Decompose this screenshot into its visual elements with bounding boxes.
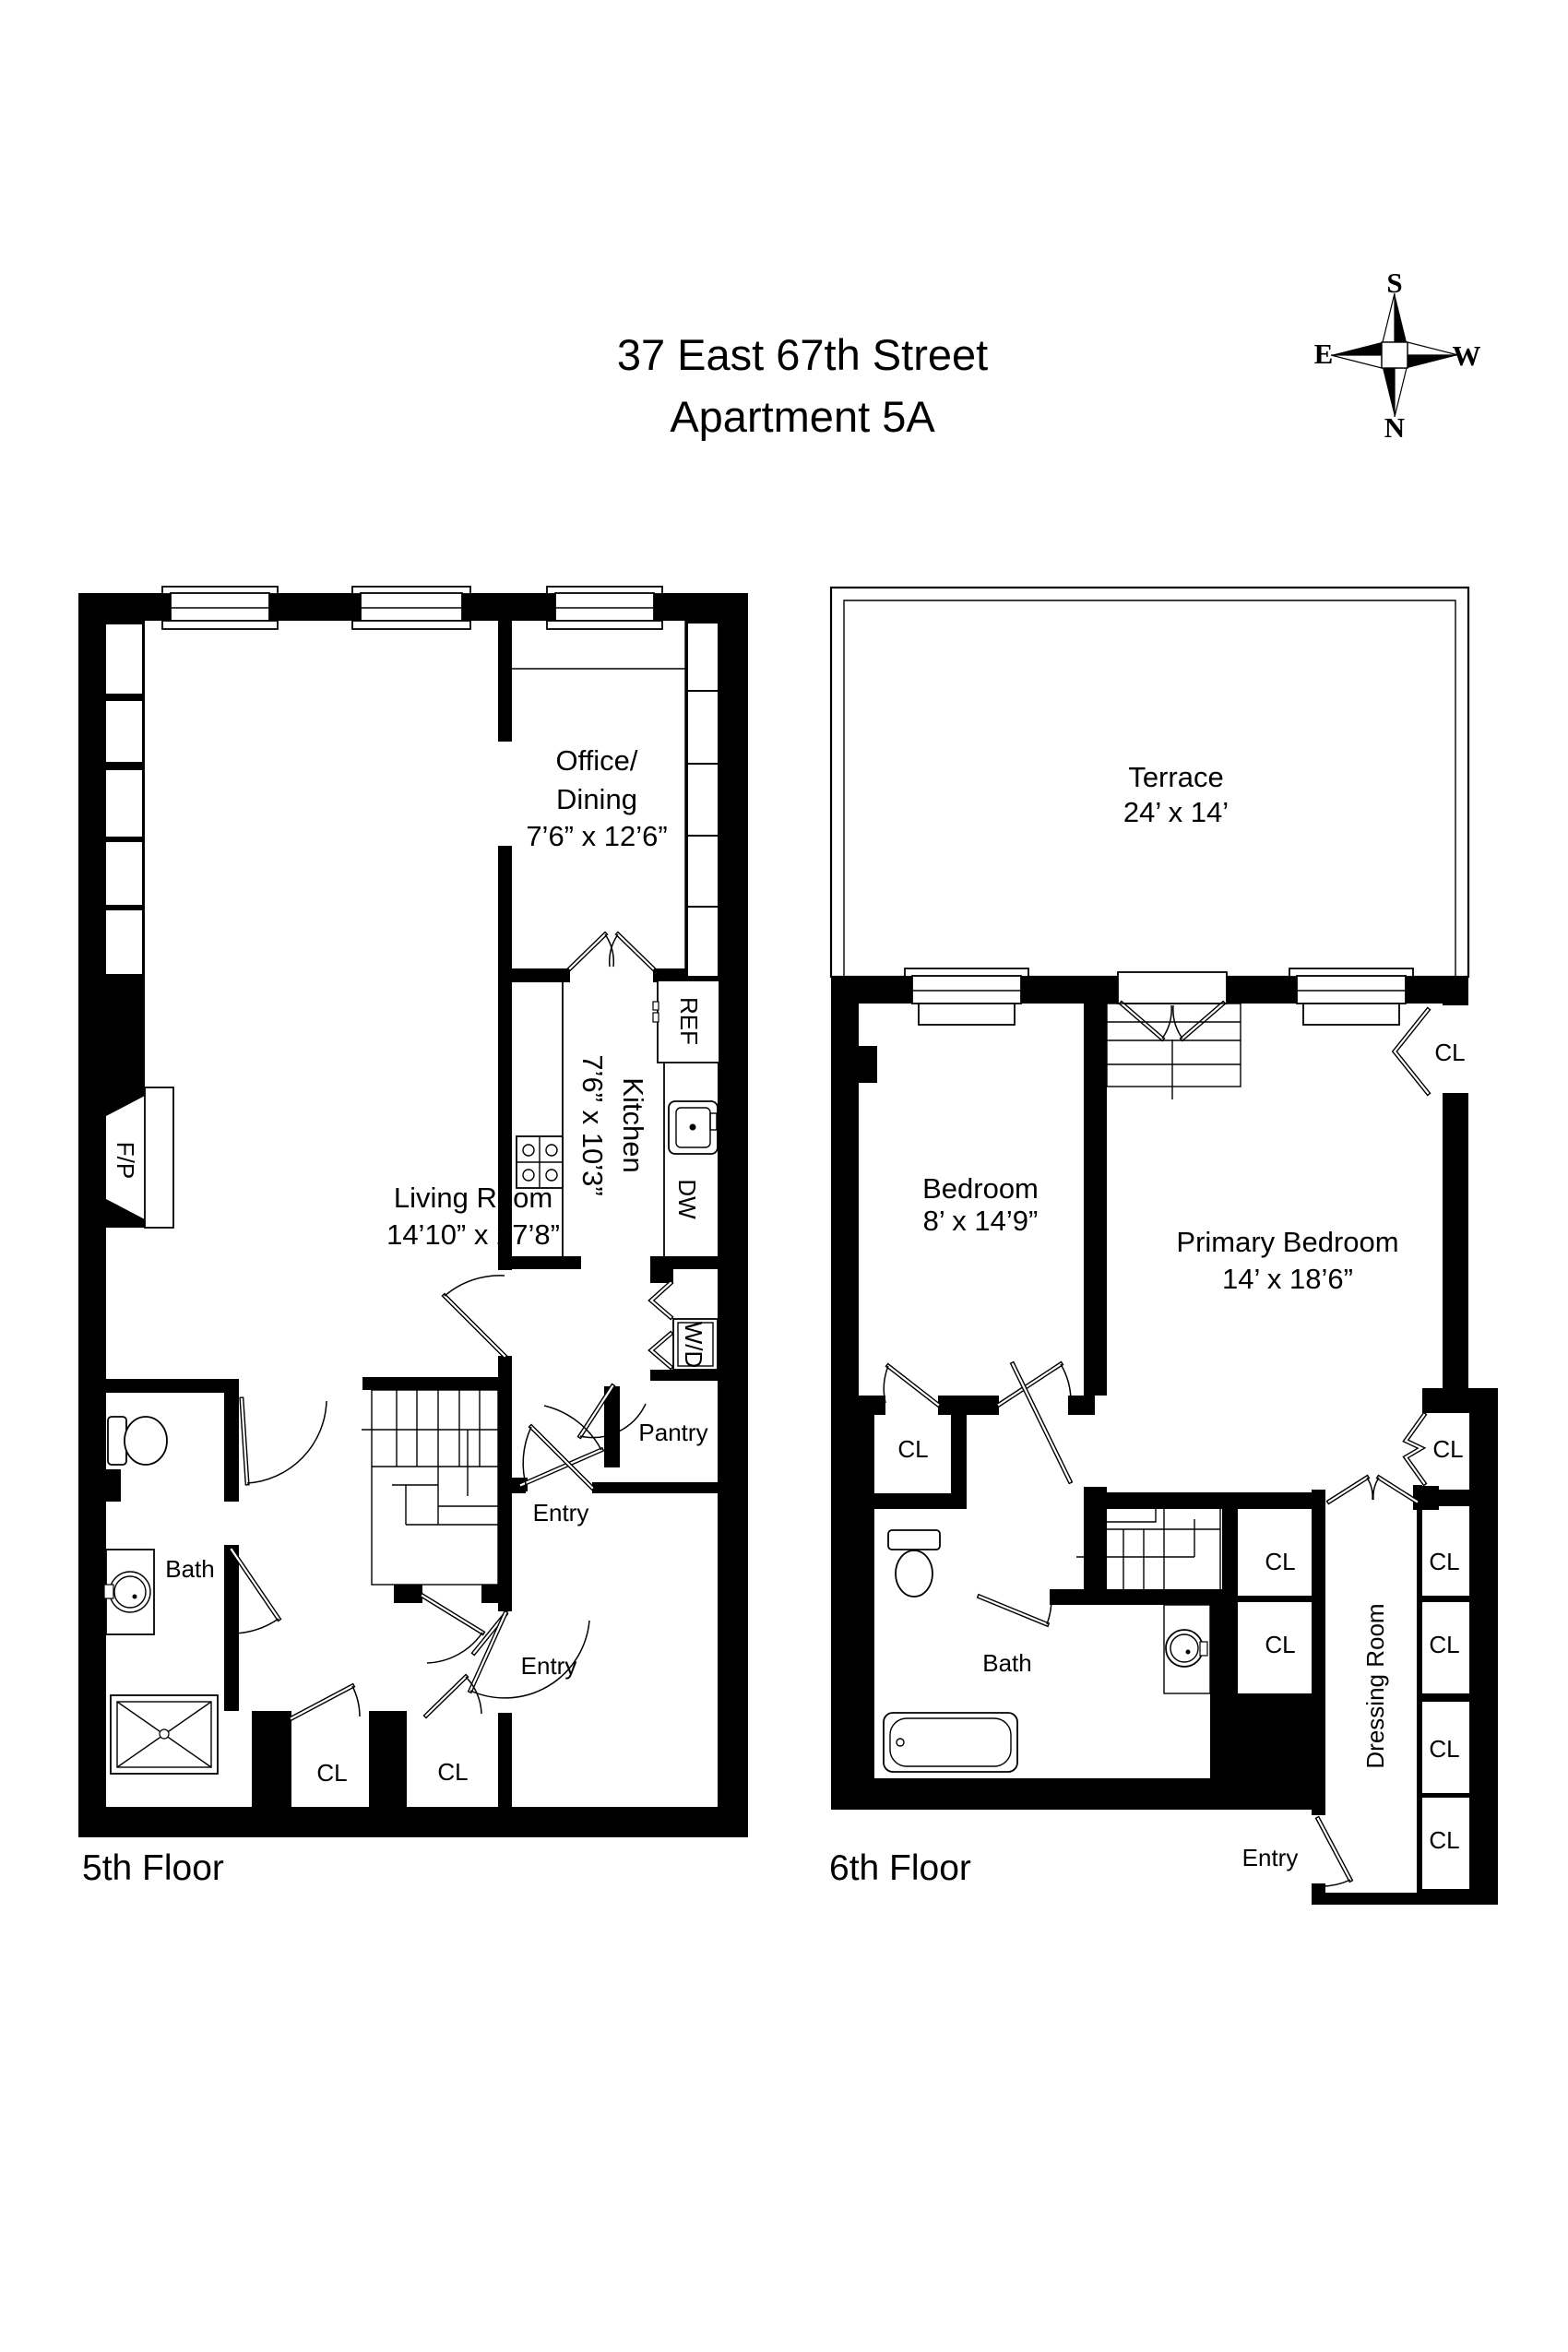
label-dw: DW	[673, 1179, 701, 1219]
room-dims-terrace: 24’ x 14’	[1123, 796, 1229, 828]
terrace-door-icon	[1118, 972, 1227, 1039]
floor6-plan: Terrace 24’ x 14’ Bedroom 8’ x 14’9” Pri…	[829, 588, 1498, 1905]
bifold-closet-right-icon	[1406, 1415, 1424, 1483]
door-bedroom-closet	[884, 1366, 938, 1405]
label-cl-mid-upper: CL	[1265, 1548, 1295, 1575]
floor6-caption: 6th Floor	[829, 1848, 971, 1888]
door-bedroom	[999, 1364, 1071, 1405]
door-hall	[445, 1276, 505, 1356]
floorplan-drawing: 37 East 67th Street Apartment 5A S N E W	[0, 0, 1568, 2352]
label-entry-upper: Entry	[533, 1499, 589, 1526]
window-icon	[162, 587, 278, 629]
label-cl-stack2: CL	[1429, 1631, 1459, 1658]
room-label-kitchen: Kitchen	[617, 1077, 649, 1172]
label-cl-stack4: CL	[1429, 1826, 1459, 1854]
compass-west-label: W	[1453, 339, 1481, 372]
fireplace-hearth	[145, 1087, 173, 1228]
room-label-bath6: Bath	[982, 1649, 1032, 1677]
floorplan-page: 37 East 67th Street Apartment 5A S N E W	[0, 0, 1568, 2352]
bath-sink-icon	[1164, 1605, 1210, 1693]
bath-sink-icon	[104, 1550, 154, 1634]
door-entry6	[1318, 1819, 1350, 1886]
window-icon	[352, 587, 470, 629]
label-closet2: CL	[437, 1758, 468, 1786]
compass-south-label: S	[1386, 267, 1402, 299]
bathtub-icon	[884, 1713, 1017, 1772]
door-corridor	[242, 1399, 327, 1483]
shower-icon	[111, 1695, 218, 1774]
room-label-office1: Office/	[555, 744, 637, 777]
room-label-pantry: Pantry	[638, 1419, 707, 1446]
toilet-icon	[888, 1530, 940, 1597]
title-block: 37 East 67th Street Apartment 5A	[617, 330, 988, 441]
room-label-terrace: Terrace	[1128, 761, 1223, 793]
title-line2: Apartment 5A	[670, 392, 935, 441]
compass-east-label: E	[1314, 338, 1334, 370]
stove-icon	[517, 1136, 563, 1188]
floor5-plan: Living Room 14’10” x 27’8” Office/ Dinin…	[78, 587, 748, 1888]
compass-rose-icon: S N E W	[1314, 267, 1481, 444]
label-fireplace: F/P	[112, 1142, 139, 1179]
label-closet1: CL	[316, 1759, 347, 1787]
floor5-doors	[232, 934, 653, 1718]
label-cl-left: CL	[897, 1435, 928, 1463]
compass-north-label: N	[1384, 411, 1405, 444]
room-dims-living: 14’10” x 27’8”	[386, 1218, 560, 1251]
room-label-dressing: Dressing Room	[1361, 1603, 1389, 1768]
kitchen-sink-icon	[669, 1101, 718, 1154]
label-cl-mid-lower: CL	[1265, 1631, 1295, 1658]
room-dims-bedroom: 8’ x 14’9”	[923, 1205, 1039, 1237]
door-bath6	[980, 1597, 1051, 1624]
floor5-walls	[78, 593, 748, 1837]
room-label-primary: Primary Bedroom	[1176, 1226, 1398, 1258]
door-dressing-double	[1329, 1478, 1417, 1502]
door-upper-entry	[521, 1406, 601, 1485]
room-label-living: Living Room	[394, 1182, 552, 1214]
label-entry-lower: Entry	[521, 1652, 577, 1680]
room-label-bath5: Bath	[165, 1555, 215, 1583]
window-icon	[905, 968, 1028, 1025]
room-dims-kitchen: 7’6” x 10’3”	[576, 1054, 609, 1195]
toilet-icon	[108, 1417, 167, 1465]
room-dims-office: 7’6” x 12’6”	[526, 820, 667, 852]
label-cl-stack1: CL	[1429, 1548, 1459, 1575]
label-cl-stack3: CL	[1429, 1735, 1459, 1763]
label-wd: W/D	[680, 1322, 707, 1369]
floor6-fixtures	[884, 1530, 1210, 1772]
label-entry6: Entry	[1242, 1844, 1299, 1871]
staircase-5f	[362, 1390, 498, 1585]
floor5-caption: 5th Floor	[82, 1848, 224, 1888]
label-cl-right-upper: CL	[1432, 1435, 1463, 1463]
label-cl-top-right: CL	[1434, 1039, 1465, 1066]
door-kitchen-double	[570, 934, 653, 968]
floor5-windows	[162, 587, 662, 629]
window-icon	[547, 587, 662, 629]
door-bedroom-open-leaf	[1013, 1364, 1070, 1481]
room-label-bedroom: Bedroom	[922, 1172, 1039, 1205]
room-label-office2: Dining	[556, 783, 637, 815]
door-closet1	[291, 1686, 360, 1718]
title-line1: 37 East 67th Street	[617, 330, 988, 379]
label-ref: REF	[675, 997, 703, 1045]
room-dims-primary: 14’ x 18’6”	[1222, 1263, 1353, 1295]
window-icon	[1289, 968, 1413, 1025]
